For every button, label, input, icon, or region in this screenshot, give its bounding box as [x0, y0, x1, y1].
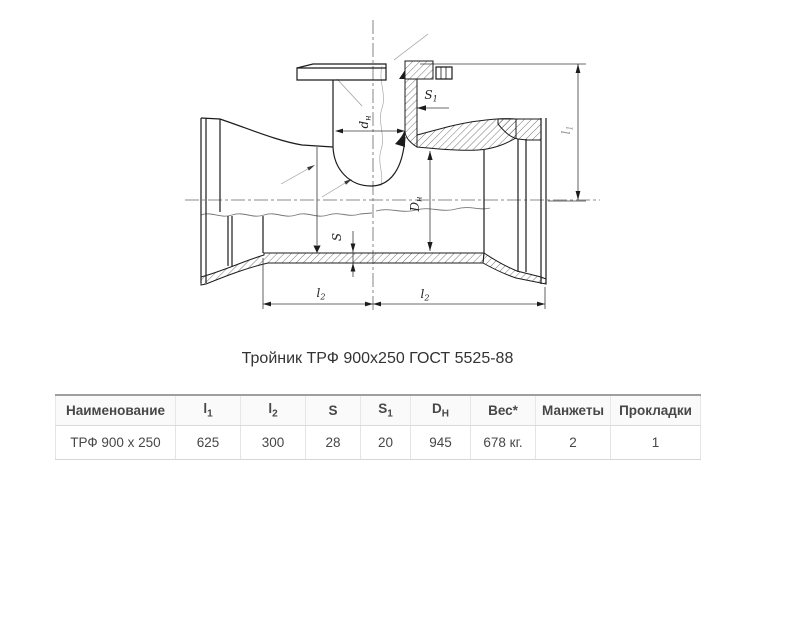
leader-arrowheads — [307, 165, 352, 185]
dimension-arrowheads — [263, 64, 580, 306]
main-outline — [201, 64, 546, 284]
dim-label-s: S — [330, 233, 344, 241]
col-header-s1: S1 — [361, 395, 411, 426]
catalog-page: { "title": "Тройник ТРФ 900х250 ГОСТ 552… — [0, 0, 800, 623]
cell-name: ТРФ 900 х 250 — [56, 426, 176, 460]
cell-cuffs: 2 — [536, 426, 611, 460]
hatched-sections — [201, 61, 546, 285]
cell-s: 28 — [306, 426, 361, 460]
col-header-weight: Вес* — [471, 395, 536, 426]
dim-label-l1-vertical: l1 — [559, 126, 575, 135]
col-header-l1: l1 — [176, 395, 241, 426]
col-header-gaskets: Прокладки — [611, 395, 701, 426]
drawing-title: Тройник ТРФ 900х250 ГОСТ 5525-88 — [55, 350, 700, 368]
cell-l2: 300 — [241, 426, 306, 460]
dim-label-l2-left: l2 — [317, 286, 326, 302]
dim-label-l2-right: l2 — [421, 287, 430, 303]
col-header-cuffs: Манжеты — [536, 395, 611, 426]
header-row: Наименование l1 l2 S S1 DН Вес* Манжеты … — [56, 395, 701, 426]
table-row: ТРФ 900 х 250 625 300 28 20 945 678 кг. … — [56, 426, 701, 460]
col-header-dn: DН — [411, 395, 471, 426]
dimensions-table: Наименование l1 l2 S S1 DН Вес* Манжеты … — [55, 394, 701, 460]
tee-drawing-svg: dн S1 Dн S l2 l2 l1 — [0, 0, 800, 345]
dim-label-Dn: Dн — [408, 197, 424, 213]
col-header-s: S — [306, 395, 361, 426]
dim-label-dn: dн — [357, 116, 373, 129]
weld-fillets — [395, 70, 405, 147]
technical-drawing: dн S1 Dн S l2 l2 l1 — [0, 0, 800, 345]
cell-weight: 678 кг. — [471, 426, 536, 460]
cell-gaskets: 1 — [611, 426, 701, 460]
col-header-l2: l2 — [241, 395, 306, 426]
col-header-name: Наименование — [56, 395, 176, 426]
break-lines — [201, 208, 490, 217]
cell-s1: 20 — [361, 426, 411, 460]
cell-dn: 945 — [411, 426, 471, 460]
cell-l1: 625 — [176, 426, 241, 460]
dim-label-s1: S1 — [424, 88, 437, 104]
